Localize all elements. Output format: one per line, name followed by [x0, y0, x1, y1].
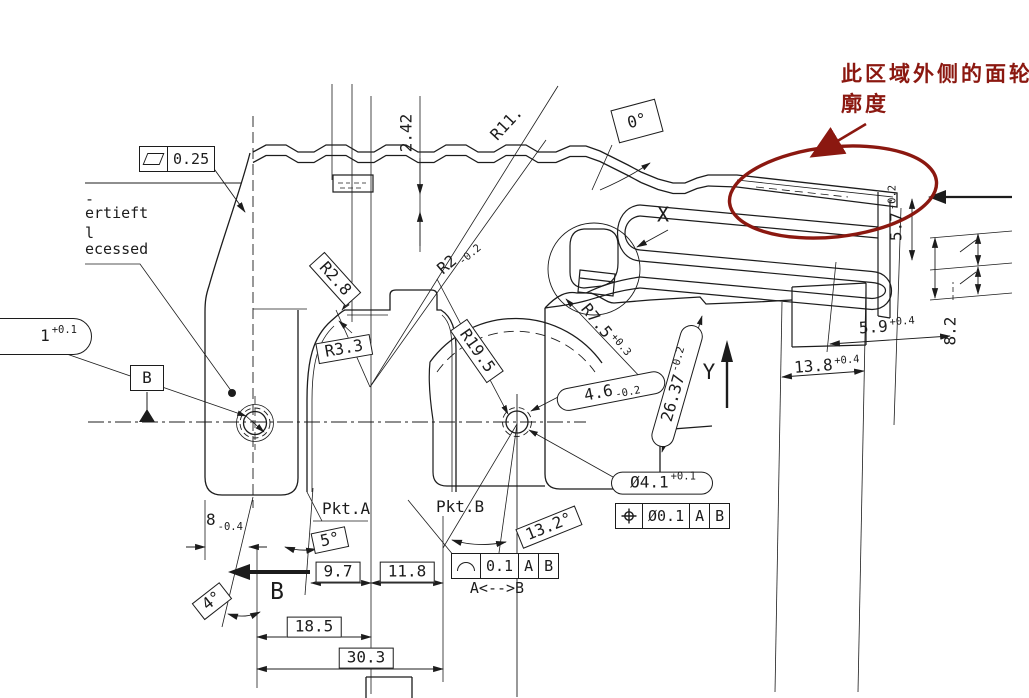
dim-5-7: 5.7-0.2 — [889, 187, 906, 241]
sheet-profile-top — [253, 145, 641, 172]
leader-dot — [228, 389, 236, 397]
note-vertieft: ertieft — [85, 206, 148, 222]
annotation-arrow — [814, 124, 866, 155]
y-axis-label: Y — [703, 361, 716, 383]
y-axis-arrowhead — [721, 340, 733, 362]
finger-2-outline — [307, 290, 456, 492]
fcf-position-value: Ø0.1 — [642, 504, 689, 528]
fcf-profile: 0.1 A B — [451, 553, 559, 579]
dim-8: 8-0.4 — [206, 512, 241, 529]
dim-11-8: 11.8 — [380, 562, 435, 583]
dim-8-2: 8.2 — [943, 317, 960, 346]
fcf-profile-datum2: B — [538, 554, 558, 578]
annotation-text-line1: 此区域外侧的面轮 — [841, 58, 1029, 88]
point-b-label: Pkt.B — [436, 499, 484, 516]
finger-1-outline — [205, 153, 298, 495]
datum-b-label: B — [130, 365, 164, 391]
fcf-position-datum1: A — [689, 504, 709, 528]
dim-18-5: 18.5 — [287, 617, 342, 638]
annotation-text-line2: 廓度 — [841, 88, 889, 118]
fcf-profile-datum1: A — [518, 554, 538, 578]
dim-9-7: 9.7 — [316, 562, 361, 583]
fcf-flatness-value: 0.25 — [167, 147, 214, 171]
annotation-ellipse — [725, 136, 941, 247]
fcf-profile-value: 0.1 — [480, 554, 518, 578]
dim-30-3: 30.3 — [339, 648, 394, 669]
technical-drawing: 0.25 - ertieft l ecessed 2.42 R11. 0° 5.… — [0, 0, 1029, 698]
position-icon — [616, 504, 642, 528]
fcf-position-datum2: B — [709, 504, 729, 528]
dim-dia-4-1-balloon: Ø4.1+0.1 — [611, 472, 713, 495]
dim-2-42: 2.42 — [399, 114, 416, 153]
note-recessed: ecessed — [85, 242, 148, 258]
between-a-b-note: A<-->B — [470, 581, 524, 597]
dim-1-balloon: 1+0.1 — [0, 318, 92, 355]
point-a-label: Pkt.A — [322, 501, 370, 518]
profile-of-line-icon — [452, 554, 480, 578]
detail-x-label: X — [657, 205, 669, 226]
recessed-pocket — [333, 175, 373, 192]
datum-triangle — [139, 409, 155, 422]
flatness-icon — [140, 147, 167, 171]
view-b-arrowhead — [228, 564, 250, 580]
fcf-flatness: 0.25 — [139, 146, 215, 172]
view-b-label: B — [270, 580, 284, 604]
fcf-position: Ø0.1 A B — [615, 503, 730, 529]
